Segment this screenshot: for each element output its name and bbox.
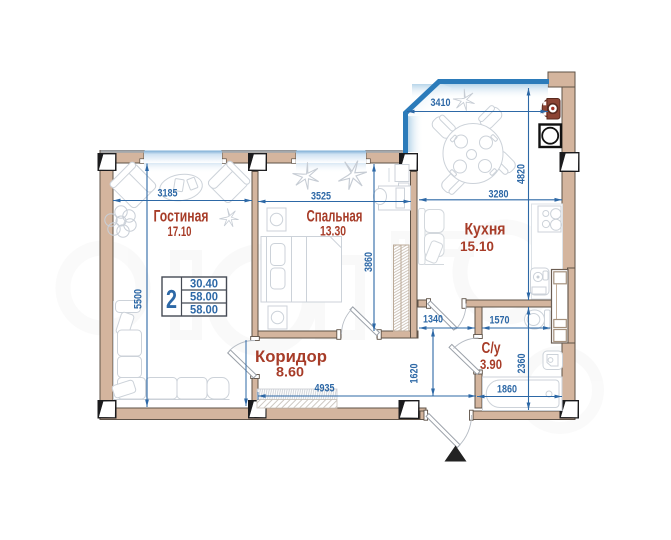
svg-text:8.60: 8.60 (276, 364, 304, 380)
svg-text:15.10: 15.10 (460, 238, 494, 254)
svg-text:58.00: 58.00 (190, 303, 218, 317)
svg-text:3860: 3860 (363, 252, 375, 272)
svg-text:1570: 1570 (490, 315, 510, 327)
svg-text:30.40: 30.40 (190, 277, 218, 291)
svg-text:3410: 3410 (431, 97, 451, 109)
svg-text:5500: 5500 (133, 289, 145, 309)
svg-text:4935: 4935 (315, 383, 335, 395)
svg-text:3.90: 3.90 (480, 356, 502, 372)
svg-text:2360: 2360 (516, 354, 528, 374)
svg-text:4820: 4820 (516, 164, 528, 184)
svg-text:58.00: 58.00 (190, 290, 218, 304)
svg-text:3525: 3525 (311, 190, 331, 202)
svg-text:3280: 3280 (489, 188, 509, 200)
svg-text:13.30: 13.30 (320, 223, 346, 239)
svg-text:Кухня: Кухня (465, 221, 506, 239)
svg-text:1620: 1620 (409, 364, 421, 384)
svg-text:3185: 3185 (158, 188, 178, 200)
svg-text:С/у: С/у (482, 340, 501, 357)
svg-text:2: 2 (166, 284, 177, 314)
svg-text:17.10: 17.10 (168, 223, 192, 239)
svg-text:1860: 1860 (497, 384, 517, 396)
svg-text:1340: 1340 (423, 314, 443, 326)
